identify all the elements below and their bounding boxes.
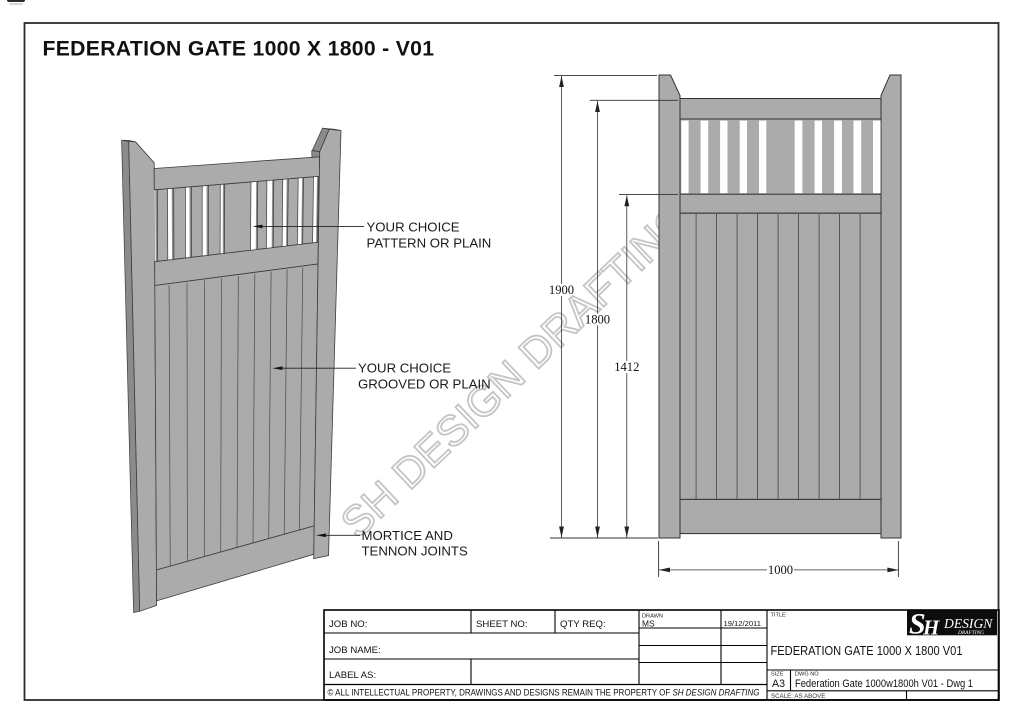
svg-text:FEDERATION GATE 1000 X 1800 V0: FEDERATION GATE 1000 X 1800 V01 bbox=[771, 643, 963, 658]
svg-text:19/12/2011: 19/12/2011 bbox=[724, 619, 761, 628]
svg-text:1900: 1900 bbox=[549, 283, 574, 297]
svg-text:1000: 1000 bbox=[768, 563, 793, 577]
svg-text:DRAFTING: DRAFTING bbox=[957, 630, 984, 636]
svg-text:A3: A3 bbox=[772, 678, 785, 690]
svg-text:TENNON JOINTS: TENNON JOINTS bbox=[362, 544, 468, 559]
svg-text:JOB NAME:: JOB NAME: bbox=[329, 645, 381, 656]
svg-text:SHEET NO:: SHEET NO: bbox=[476, 619, 528, 630]
svg-text:LABEL AS:: LABEL AS: bbox=[329, 670, 376, 681]
svg-text:H: H bbox=[922, 616, 940, 640]
svg-text:1412: 1412 bbox=[614, 360, 639, 374]
svg-text:MS: MS bbox=[642, 619, 655, 629]
svg-text:Federation Gate 1000w1800h V01: Federation Gate 1000w1800h V01 - Dwg 1 bbox=[795, 678, 973, 690]
svg-text:GROOVED OR PLAIN: GROOVED OR PLAIN bbox=[358, 376, 491, 391]
svg-text:QTY REQ:: QTY REQ: bbox=[560, 619, 606, 630]
svg-text:SCALE: AS ABOVE: SCALE: AS ABOVE bbox=[771, 693, 825, 700]
svg-text:YOUR CHOICE: YOUR CHOICE bbox=[367, 220, 460, 235]
svg-text:FEDERATION GATE 1000 X 1800 -: FEDERATION GATE 1000 X 1800 - V01 bbox=[43, 38, 435, 61]
svg-text:PATTERN OR PLAIN: PATTERN OR PLAIN bbox=[367, 235, 492, 250]
svg-text:TITLE: TITLE bbox=[771, 613, 786, 619]
svg-text:YOUR CHOICE: YOUR CHOICE bbox=[358, 361, 451, 376]
svg-text:MORTICE AND: MORTICE AND bbox=[362, 528, 453, 543]
svg-text:DESIGN: DESIGN bbox=[943, 616, 993, 631]
svg-text:1800: 1800 bbox=[585, 313, 610, 327]
svg-text:JOB NO:: JOB NO: bbox=[329, 619, 367, 630]
svg-text:SIZE: SIZE bbox=[771, 672, 784, 678]
svg-text:© ALL INTELLECTUAL PROPERTY, D: © ALL INTELLECTUAL PROPERTY, DRAWINGS AN… bbox=[328, 688, 760, 698]
svg-text:DWG NO: DWG NO bbox=[795, 672, 819, 678]
